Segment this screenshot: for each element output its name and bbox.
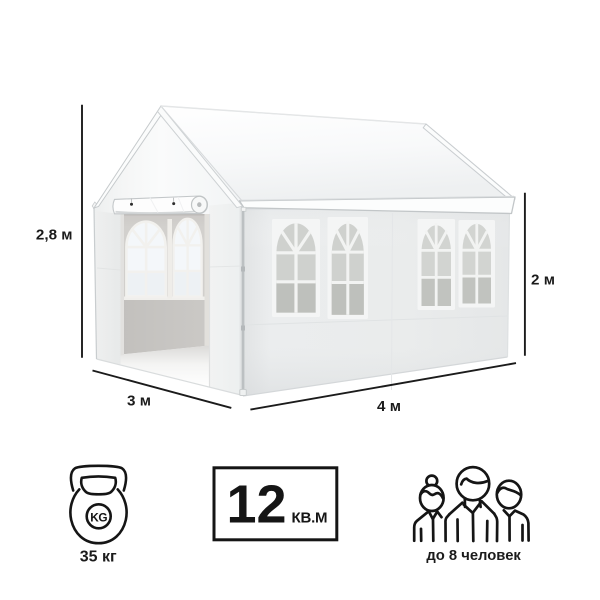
svg-text:KG: KG — [90, 511, 107, 525]
svg-text:4 м: 4 м — [377, 398, 401, 415]
svg-text:до 8 человек: до 8 человек — [426, 548, 521, 564]
svg-text:12: 12 — [227, 475, 287, 535]
svg-text:3 м: 3 м — [127, 393, 151, 410]
svg-text:2,8 м: 2,8 м — [36, 227, 73, 244]
svg-text:КВ.М: КВ.М — [292, 510, 328, 527]
svg-text:2 м: 2 м — [531, 272, 555, 289]
svg-text:35 кг: 35 кг — [80, 549, 117, 566]
